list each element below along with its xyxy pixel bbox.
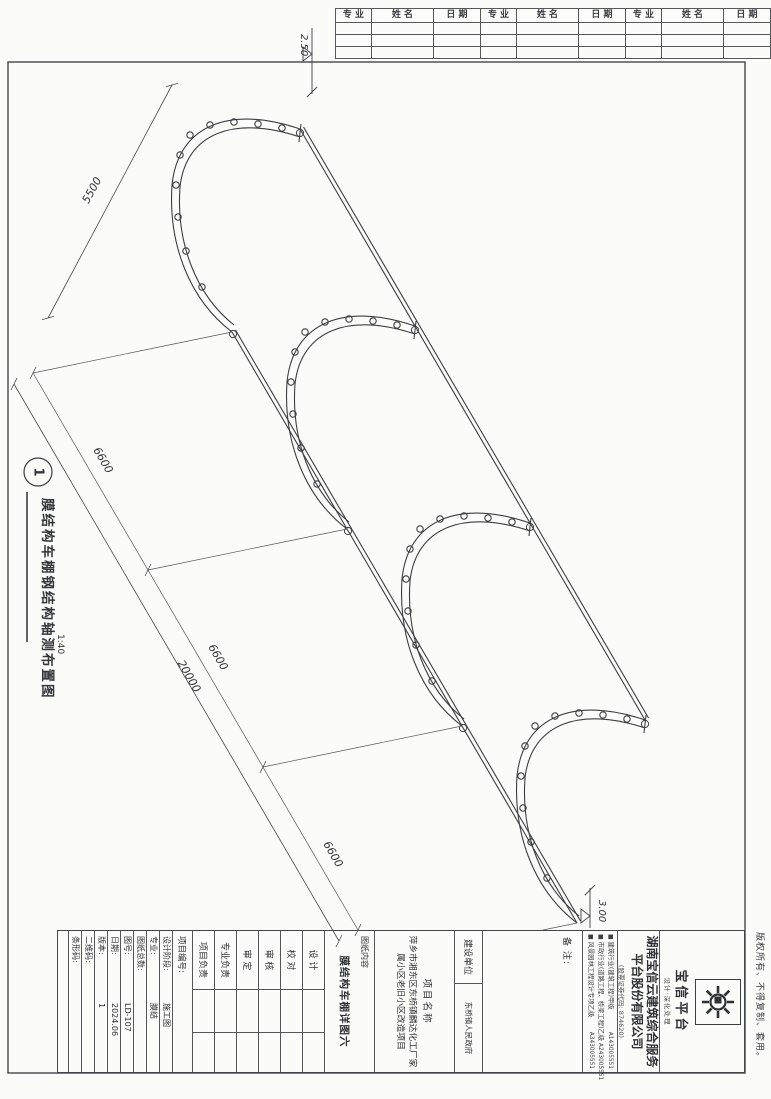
certificate-text: 建筑行业(建筑工程)甲级 — [607, 942, 614, 1010]
field-row-qrcode: 二维码: — [81, 931, 94, 1072]
field-row-sheet-number: 图号: LD-107 — [120, 931, 133, 1072]
signature-row: 项目负责 — [192, 931, 214, 1072]
signature-row: 审 定 — [236, 931, 258, 1072]
signature-date-cell — [193, 1033, 214, 1072]
signature-name-cell — [281, 990, 302, 1033]
signature-name-cell — [193, 990, 214, 1033]
title-block: 宝信平台 设计·深化处理 湖南宝信云建筑综合服务平台股份有限公司 (股票证券代码… — [57, 930, 745, 1073]
cert-bullet-icon: ■ — [597, 934, 604, 940]
copyright-note: 版权所有、不得复制、套用。 — [749, 932, 767, 1097]
signature-row: 校 对 — [280, 931, 302, 1072]
gear-starburst-icon — [700, 984, 736, 1020]
signature-label: 项目负责 — [193, 931, 214, 990]
field-value: 2024.06 — [108, 1003, 120, 1072]
logo-box: 宝信平台 设计·深化处理 — [659, 931, 744, 1072]
company-stock-code: (股票证券代码: 874620) — [618, 965, 628, 1038]
remarks-box: 备 注: — [482, 931, 582, 1072]
baoxin-logo-frame — [695, 979, 741, 1025]
signature-date-cell — [215, 1033, 236, 1072]
sheet-content-label: 图纸内容 — [359, 936, 370, 968]
certificates-box: ■建筑行业(建筑工程)甲级 A143005551 ■市政行业(道路工程、桥梁工程… — [582, 931, 617, 1072]
signature-row: 设 计 — [302, 931, 324, 1072]
sheet-content-value: 膜结构车棚详图六 — [337, 931, 352, 1072]
cert-bullet-icon: ■ — [607, 934, 614, 940]
field-label: 二维码: — [82, 931, 94, 1003]
signature-date-cell — [259, 1033, 280, 1072]
logo-name: 宝信平台 — [673, 969, 692, 1033]
signature-row: 审 核 — [258, 931, 280, 1072]
signature-label: 专业负责 — [215, 931, 236, 990]
client-row: 建设单位 东桥镇人民政府 — [454, 931, 482, 1072]
signature-name-cell — [303, 990, 324, 1033]
company-name: 湖南宝信云建筑综合服务平台股份有限公司 — [630, 931, 660, 1072]
field-row-design-stage: 设计阶段: 施工图 — [159, 931, 172, 1072]
field-value: 施工图 — [160, 1003, 172, 1072]
field-value: 1 — [95, 1003, 107, 1072]
signature-label: 审 核 — [259, 931, 280, 990]
rotated-titleblock-layer: 版权所有、不得复制、套用。 — [0, 0, 771, 1099]
field-row-sheet-count: 图纸总数: — [133, 931, 146, 1072]
field-row-discipline: 专业: 膜结 — [146, 931, 159, 1072]
field-label: 专业: — [147, 931, 159, 1003]
field-label: 日期: — [108, 931, 120, 1003]
signature-date-cell — [237, 1033, 258, 1072]
signature-label: 校 对 — [281, 931, 302, 990]
logo-tagline: 设计·深化处理 — [663, 977, 673, 1025]
certificate-line: ■建筑行业(建筑工程)甲级 A143005551 — [605, 934, 615, 1069]
certificate-line: ■市政行业(道路工程、桥梁工程)乙级 A243005551 — [595, 934, 605, 1069]
certificate-text: 风景园林工程设计专项乙级 — [587, 942, 594, 1018]
cert-bullet-icon: ■ — [587, 934, 594, 940]
field-value — [69, 1003, 81, 1072]
scanned-drawing-sheet: 5500 6600 6600 6600 20000 2.50 3.00 — [0, 0, 771, 1099]
certificate-text: 市政行业(道路工程、桥梁工程)乙级 — [597, 942, 604, 1041]
field-row-project-number: 项目编号: — [172, 931, 192, 1072]
field-value — [134, 1003, 146, 1072]
client-value: 东桥镇人民政府 — [455, 984, 482, 1072]
certificate-line: ■风景园林工程设计专项乙级 A343005551 — [585, 934, 595, 1069]
signature-date-cell — [281, 1033, 302, 1072]
signature-name-cell — [215, 990, 236, 1033]
field-row-barcode: 条形码: — [68, 931, 81, 1072]
field-label: 图号: — [121, 931, 133, 1003]
signature-date-cell — [303, 1033, 324, 1072]
signature-name-cell — [237, 990, 258, 1033]
project-name-box: 项目名称 萍乡市湘东区东桥镇麟达化工厂家属小区老旧小区改造项目 — [374, 931, 454, 1072]
field-value — [82, 1003, 94, 1072]
signature-label: 设 计 — [303, 931, 324, 990]
field-row-date: 日期: 2024.06 — [107, 931, 120, 1072]
signature-name-cell — [259, 990, 280, 1033]
field-label: 设计阶段: — [160, 931, 172, 1003]
signature-label: 审 定 — [237, 931, 258, 990]
certificate-code: A243005551 — [596, 1043, 605, 1080]
empty-end-cell — [58, 931, 68, 1072]
field-value: LD-107 — [121, 1003, 133, 1072]
field-label: 图纸总数: — [134, 931, 146, 1003]
certificate-code: A343005551 — [586, 1032, 595, 1069]
field-row-version: 版本: 1 — [94, 931, 107, 1072]
project-name-value: 萍乡市湘东区东桥镇麟达化工厂家属小区老旧小区改造项目 — [394, 931, 419, 1072]
sheet-content-box: 图纸内容 膜结构车棚详图六 — [324, 931, 374, 1072]
certificate-code: A143005551 — [605, 1032, 614, 1069]
project-name-label: 项目名称 — [421, 978, 435, 1024]
field-label: 条形码: — [69, 931, 81, 1003]
field-value: 膜结 — [147, 1003, 159, 1072]
client-label: 建设单位 — [455, 931, 482, 984]
signature-row: 专业负责 — [214, 931, 236, 1072]
field-label: 版本: — [95, 931, 107, 1003]
company-box: 湖南宝信云建筑综合服务平台股份有限公司 (股票证券代码: 874620) — [617, 931, 659, 1072]
